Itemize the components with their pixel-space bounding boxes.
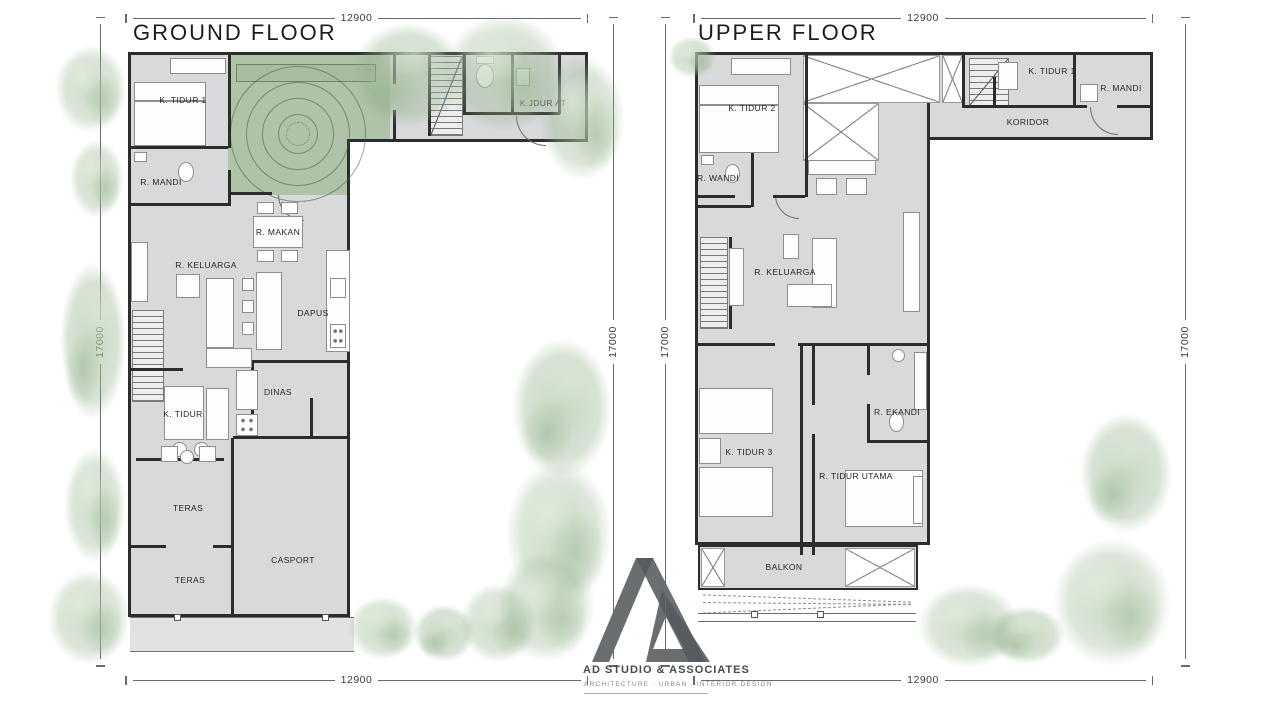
furniture <box>816 178 837 195</box>
furniture <box>731 58 791 75</box>
dim-tick <box>661 17 670 19</box>
room-label-balkon: BALKON <box>766 562 803 572</box>
wall <box>867 343 870 375</box>
furniture <box>330 278 346 298</box>
furniture <box>134 82 206 146</box>
furniture <box>206 348 252 368</box>
furniture <box>236 414 258 436</box>
furniture <box>729 248 744 306</box>
wall <box>393 110 396 140</box>
furniture <box>476 64 494 88</box>
wall <box>128 203 228 206</box>
wall <box>962 105 1087 108</box>
staircase <box>132 310 164 402</box>
wall <box>1117 105 1153 108</box>
furniture <box>701 155 714 165</box>
furniture <box>257 250 274 262</box>
uf-dim-right: 17000 <box>1179 17 1191 667</box>
room-label-koridor: KORIDOR <box>1007 117 1049 127</box>
wall <box>867 440 930 443</box>
furniture <box>699 85 779 153</box>
wall <box>773 195 805 198</box>
furniture <box>516 68 530 86</box>
furniture <box>913 476 923 524</box>
furniture <box>131 242 148 302</box>
dim-tick <box>587 14 589 23</box>
room-label-r-mandi: R. MANDI <box>140 177 181 187</box>
dim-tick <box>125 14 127 23</box>
gf-dim-bottom: 12900 <box>125 674 588 686</box>
wall <box>213 545 233 548</box>
furniture <box>699 438 721 464</box>
wall <box>231 438 234 617</box>
wall <box>962 52 965 108</box>
furniture <box>161 446 178 462</box>
room-label-k-tidur-3: K. TIDUR 3 <box>725 447 772 457</box>
ground-floor-title: GROUND FLOOR <box>133 20 337 46</box>
dim-tick <box>1181 666 1190 668</box>
floorplan-sheet: GROUND FLOOR 12900 12900 17000 17000 K. … <box>0 0 1280 720</box>
void-opening <box>803 55 940 103</box>
furniture <box>236 370 258 410</box>
furniture <box>914 352 927 410</box>
room-label-r-makan: R. MAKAN <box>256 227 300 237</box>
tree <box>55 45 127 133</box>
room-label-r-wandi: R. WANDI <box>697 173 739 183</box>
wall <box>511 52 514 114</box>
dim-tick <box>1152 676 1154 685</box>
wall <box>695 205 751 208</box>
room-label-k-tidur-2: K. TIDUR 2 <box>728 103 775 113</box>
wall <box>228 170 231 206</box>
furniture <box>242 300 254 313</box>
room-label-k-tidur-1: K. TIDUR 1 <box>1028 66 1075 76</box>
furniture <box>206 278 234 348</box>
ground-floor-plan: K. TIDUR 1R. MANDIK.JDUR ATR. MAKANR. KE… <box>128 52 588 652</box>
furniture <box>176 274 200 298</box>
dim-tick <box>693 14 695 23</box>
dim-tick <box>1181 17 1190 19</box>
uf-dim-left: 17000 <box>659 17 671 667</box>
staircase <box>430 56 463 136</box>
furniture <box>476 56 494 64</box>
furniture <box>170 58 226 74</box>
wall <box>812 343 815 405</box>
furniture <box>998 62 1018 90</box>
room-label-casport: CASPORT <box>271 555 315 565</box>
furniture <box>206 388 229 440</box>
wall <box>393 52 396 84</box>
wall <box>251 360 350 363</box>
furniture <box>281 250 298 262</box>
furniture <box>903 212 920 312</box>
furniture <box>256 272 282 350</box>
wall <box>233 436 350 439</box>
room-label-teras: TERAS <box>175 575 205 585</box>
dim-tick <box>1152 14 1154 23</box>
furniture <box>699 467 773 517</box>
wall <box>428 52 431 136</box>
wall <box>228 192 272 195</box>
room-label-k-tidur: K. TIDUR <box>163 409 202 419</box>
furniture <box>699 388 773 434</box>
wall <box>128 368 183 371</box>
furniture <box>846 178 867 195</box>
wall <box>1073 55 1076 108</box>
dim-tick <box>96 17 105 19</box>
room-label-r-keluarga: R. KELUARGA <box>175 260 237 270</box>
wall <box>128 146 228 149</box>
wall <box>695 195 735 198</box>
wall <box>463 52 466 114</box>
staircase <box>700 237 728 329</box>
logo-rule <box>584 693 708 694</box>
gf-driveway-apron <box>130 617 354 652</box>
furniture <box>1080 84 1098 102</box>
balcony-grille <box>845 548 915 587</box>
furniture <box>199 446 216 462</box>
room-label-r-ekandi: R. EKANDI <box>874 407 920 417</box>
wall <box>228 52 231 148</box>
furniture <box>892 349 905 362</box>
wall <box>993 77 996 107</box>
room-label-r-keluarga: R. KELUARGA <box>754 267 816 277</box>
wall <box>805 52 808 197</box>
wall <box>751 152 754 207</box>
wall <box>310 398 313 439</box>
furniture <box>242 322 254 335</box>
wall <box>815 343 930 346</box>
wall <box>463 112 560 115</box>
furniture <box>808 160 876 175</box>
furniture <box>783 234 799 259</box>
gate-post <box>817 611 824 618</box>
room-label-k-jdur-at: K.JDUR AT <box>520 98 566 108</box>
gf-dim-left: 17000 <box>94 17 106 667</box>
furniture <box>242 278 254 291</box>
furniture <box>787 284 832 307</box>
room-label-k-tidur-1: K. TIDUR 1 <box>159 95 206 105</box>
furniture <box>281 202 298 214</box>
logo-name: AD STUDIO & ASSOCIATES <box>583 664 750 676</box>
wall <box>867 404 870 443</box>
upper-floor-plan: K. TIDUR 2K. TIDUR 1R. MANDIKORIDORR. WA… <box>695 52 1153 652</box>
room-label-teras: TERAS <box>173 503 203 513</box>
dim-tick <box>125 676 127 685</box>
dim-tick <box>96 666 105 668</box>
furniture <box>134 152 147 162</box>
furniture <box>180 450 194 464</box>
gate-post <box>322 614 329 621</box>
room-label-r-tidur-utama: R. TIDUR UTAMA <box>819 471 893 481</box>
logo-tagline: ARCHITECTURE · URBAN · INTERIOR DESIGN <box>584 681 773 688</box>
gf-dim-right: 17000 <box>607 17 619 667</box>
room-label-r-mandi: R. MANDI <box>1100 83 1141 93</box>
void-opening <box>803 103 879 161</box>
dim-tick <box>609 17 618 19</box>
wall <box>695 343 775 346</box>
room-label-dapus: DAPUS <box>297 308 328 318</box>
tree <box>48 570 130 665</box>
upper-floor-title: UPPER FLOOR <box>698 20 878 46</box>
gate-post <box>751 611 758 618</box>
wall <box>128 545 166 548</box>
wall <box>812 434 815 555</box>
wall <box>800 343 803 555</box>
tree <box>60 262 126 420</box>
furniture <box>330 324 346 348</box>
void-opening <box>942 55 963 103</box>
gate-post <box>174 614 181 621</box>
furniture <box>257 202 274 214</box>
room-label-dinas: DINAS <box>264 387 292 397</box>
garden-ring <box>286 122 310 146</box>
